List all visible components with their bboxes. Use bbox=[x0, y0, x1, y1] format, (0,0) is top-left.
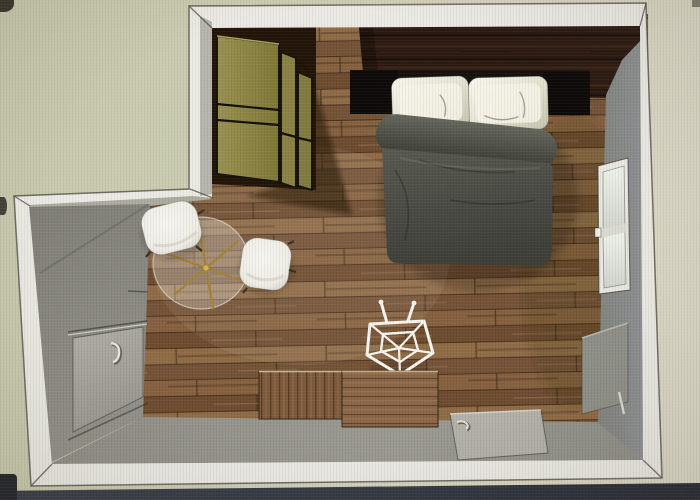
window-handle bbox=[595, 228, 601, 237]
nightstand-left bbox=[350, 70, 398, 114]
door-bottom bbox=[450, 410, 548, 460]
door-bottom-panel bbox=[450, 410, 548, 460]
window-right bbox=[595, 158, 630, 294]
sideboard-right-block bbox=[342, 371, 438, 427]
table-base-hub bbox=[203, 265, 208, 270]
photo-mark-top-right bbox=[692, 0, 700, 7]
nightstand-right bbox=[543, 72, 590, 115]
bezel-corner-bottom-left bbox=[0, 474, 17, 500]
window-pane-lower bbox=[603, 231, 626, 288]
wardrobe-panel-c bbox=[298, 72, 312, 190]
left-wall-mark bbox=[128, 291, 148, 292]
band-inner-shade bbox=[200, 16, 212, 196]
room-render-photo bbox=[0, 0, 700, 500]
wall-panel-right bbox=[582, 323, 628, 414]
window-pane-upper bbox=[603, 166, 625, 229]
wardrobe-panel-b bbox=[281, 52, 296, 188]
room-render-scene bbox=[0, 0, 700, 500]
pillow-right bbox=[468, 76, 548, 131]
sideboard-left-block bbox=[259, 371, 345, 419]
sideboard bbox=[259, 371, 438, 427]
photo-mark-left-edge bbox=[0, 197, 7, 215]
